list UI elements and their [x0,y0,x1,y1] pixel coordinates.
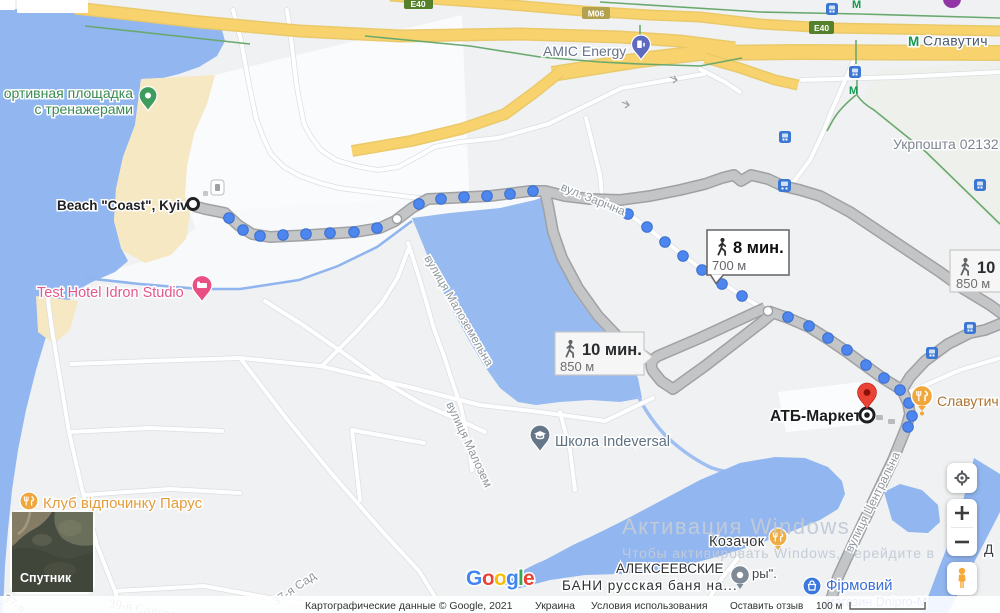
svg-text:Украина: Украина [535,600,575,612]
svg-text:Славутич: Славутич [923,33,988,49]
svg-text:850 м: 850 м [956,276,990,291]
svg-text:E40: E40 [814,23,829,33]
svg-text:e: e [523,567,535,590]
svg-text:700 м: 700 м [712,258,746,273]
svg-text:АЛЕКСЕЕВСКИЕ: АЛЕКСЕЕВСКИЕ [616,561,724,576]
svg-text:ортивная площадка: ортивная площадка [4,85,134,101]
svg-text:Славутич: Славутич [937,393,999,409]
svg-text:М: М [908,34,919,49]
svg-text:М: М [852,0,861,11]
svg-text:Спутник: Спутник [20,571,72,585]
svg-text:G: G [466,567,482,590]
svg-text:10: 10 [977,259,995,277]
svg-text:Активация Windows: Активация Windows [622,514,850,539]
svg-text:o: o [482,567,495,590]
svg-text:БАНИ русская баня на...: БАНИ русская баня на... [562,578,738,593]
svg-text:AMIC Energy: AMIC Energy [543,43,626,59]
svg-text:10 мин.: 10 мин. [582,341,642,359]
svg-text:Чтобы активировать Windows, пе: Чтобы активировать Windows, перейдите в [622,545,935,561]
svg-text:Клуб відпочинку Парус: Клуб відпочинку Парус [43,495,203,512]
svg-text:8 мин.: 8 мин. [733,239,784,257]
svg-text:ры".: ры". [752,566,777,581]
svg-text:g: g [506,567,519,590]
svg-text:Оставить отзыв: Оставить отзыв [730,601,803,612]
svg-text:850 м: 850 м [560,359,594,374]
svg-text:Картографические данные © Goog: Картографические данные © Google, 2021 [305,600,513,612]
svg-text:Школа Indeversal: Школа Indeversal [555,434,670,450]
svg-text:E40: E40 [410,0,425,9]
svg-text:Test Hotel Idron Studio: Test Hotel Idron Studio [37,285,184,301]
svg-text:Условия использования: Условия использования [591,600,708,612]
svg-text:М: М [849,85,858,97]
svg-text:с тренажерами: с тренажерами [34,101,133,117]
svg-text:Beach "Coast", Kyiv: Beach "Coast", Kyiv [57,198,188,213]
svg-text:o: o [494,567,507,590]
svg-text:Фірмовий: Фірмовий [826,577,892,594]
svg-text:Укрпошта 02132: Укрпошта 02132 [893,136,999,152]
svg-text:АТБ-Маркет: АТБ-Маркет [770,408,862,425]
svg-text:М06: М06 [588,9,605,19]
svg-text:100 м: 100 м [816,601,842,612]
svg-text:Д: Д [984,541,994,557]
